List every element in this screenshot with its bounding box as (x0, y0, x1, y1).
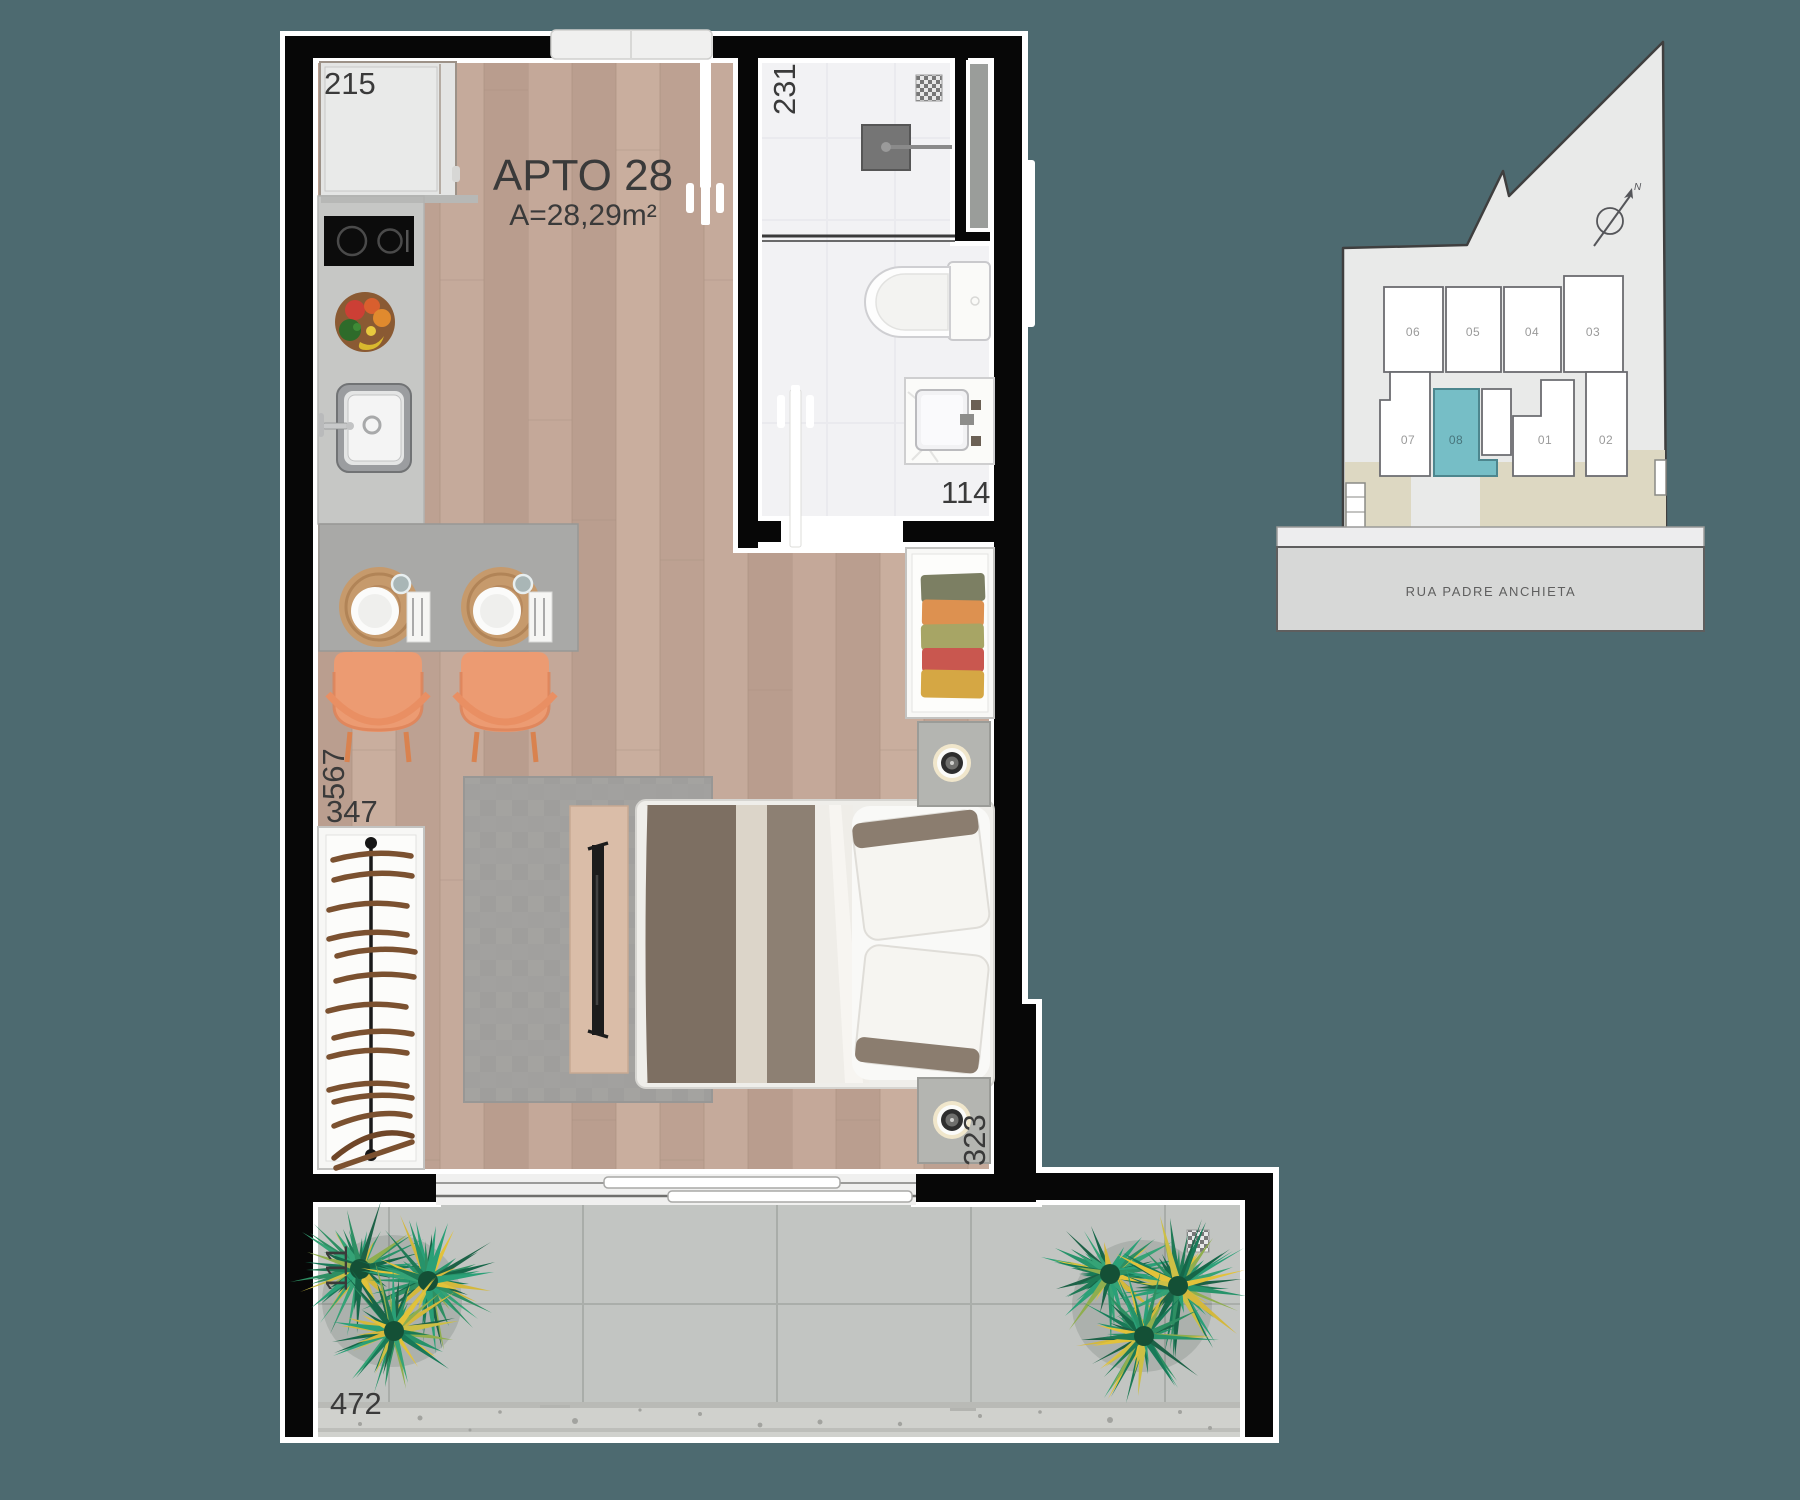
svg-text:215: 215 (324, 66, 376, 101)
svg-text:04: 04 (1525, 325, 1539, 339)
svg-text:01: 01 (1538, 433, 1552, 447)
svg-text:A=28,29m²: A=28,29m² (509, 199, 657, 232)
svg-text:06: 06 (1406, 325, 1420, 339)
svg-text:03: 03 (1586, 325, 1600, 339)
svg-text:N: N (1634, 182, 1642, 193)
svg-text:231: 231 (767, 63, 802, 115)
svg-text:RUA PADRE ANCHIETA: RUA PADRE ANCHIETA (1406, 584, 1577, 599)
svg-text:08: 08 (1449, 433, 1463, 447)
svg-text:111: 111 (319, 1245, 354, 1292)
svg-text:APTO 28: APTO 28 (493, 151, 673, 200)
svg-text:114: 114 (941, 475, 990, 510)
svg-text:323: 323 (957, 1114, 992, 1166)
svg-text:05: 05 (1466, 325, 1480, 339)
svg-text:347: 347 (326, 794, 378, 829)
svg-text:02: 02 (1599, 433, 1613, 447)
svg-text:472: 472 (330, 1386, 382, 1421)
svg-text:567: 567 (316, 748, 351, 800)
svg-text:07: 07 (1401, 433, 1415, 447)
